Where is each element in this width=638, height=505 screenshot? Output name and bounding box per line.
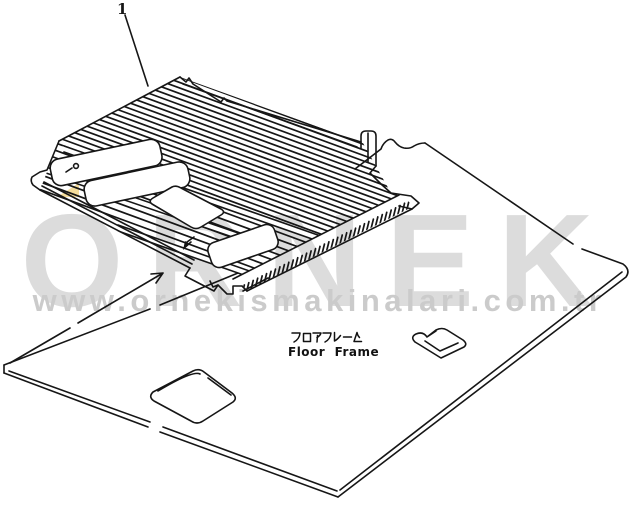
part-name-label: フロアフレーム Floor Frame: [288, 331, 370, 359]
plate-cutout: [151, 370, 236, 423]
assembly-direction-arrow: [10, 273, 163, 363]
frame-surface-hatching: [40, 77, 556, 328]
plate-bracket: [413, 329, 466, 359]
part-name-japanese: フロアフレーム: [288, 331, 370, 344]
plate-top-left-edge: [4, 273, 268, 365]
weld-mark-icon: [183, 237, 194, 250]
part-name-english: Floor Frame: [288, 345, 370, 359]
plate-top-corner: [355, 139, 425, 169]
part-diagram-svg: [0, 0, 638, 505]
callout-number: 1: [117, 0, 127, 18]
floor-frame-assembly: [31, 77, 556, 328]
diagram-page: ORNEK www.ornekismakinalari.com.tr: [0, 0, 638, 505]
callout-leader-line: [125, 15, 148, 86]
katakana-glyphs: [288, 331, 370, 344]
plate-bottom-left-edge: [4, 371, 338, 497]
